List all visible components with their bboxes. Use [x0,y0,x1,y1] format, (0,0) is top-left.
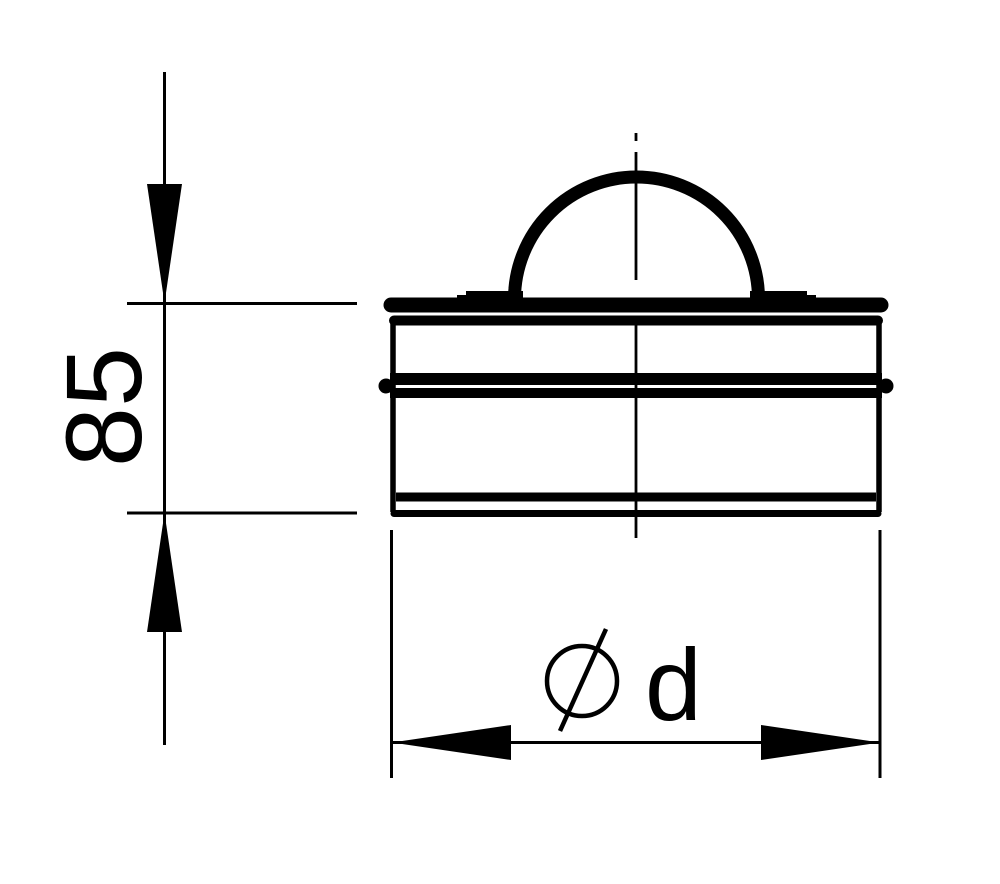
diameter-arrow-left-icon [392,725,511,760]
height-arrow-down-icon [147,184,182,303]
technical-drawing-canvas: 85 d [0,0,1000,884]
diameter-symbol-icon [547,629,617,731]
bead-bulge-left [379,379,394,394]
diameter-dimension-label: d [645,634,702,736]
height-arrow-up-icon [147,513,182,632]
cap-side-view [379,133,894,538]
height-dimension-label: 85 [50,347,158,467]
diameter-dimension [392,530,881,778]
diameter-arrow-right-icon [761,725,880,760]
bead-bulge-right [879,379,894,394]
